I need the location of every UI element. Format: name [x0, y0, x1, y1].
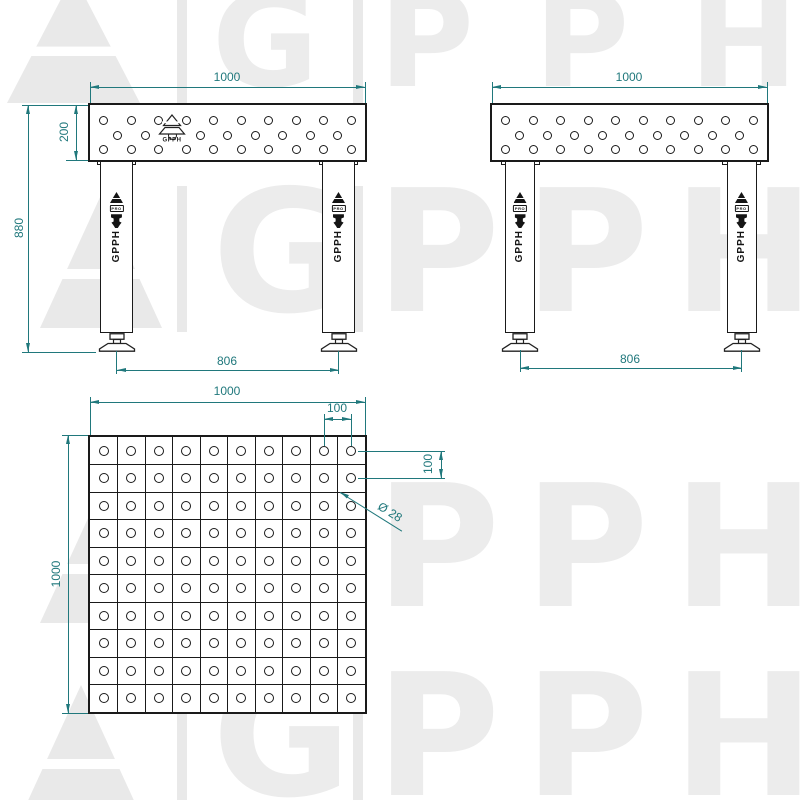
grid-hole — [181, 611, 191, 621]
front-tabletop-hole — [209, 116, 218, 125]
front-tabletop-hole — [319, 116, 328, 125]
grid-hole — [291, 611, 301, 621]
dim-ext-line — [767, 82, 768, 103]
side-tabletop-hole — [501, 145, 510, 154]
gpph-logo-front: GPPH — [152, 113, 192, 144]
leg-brand-text: GPPH — [515, 230, 525, 262]
emblem-icon — [736, 214, 747, 228]
dim-arrow — [26, 105, 30, 114]
grid-line-horizontal — [90, 602, 365, 603]
grid-hole — [319, 446, 329, 456]
table-leg: PROGPPH — [322, 160, 355, 333]
table-leg: PROGPPH — [727, 160, 757, 333]
grid-hole — [264, 583, 274, 593]
side-tabletop-hole — [721, 145, 730, 154]
front-tabletop-hole — [319, 145, 328, 154]
grid-hole — [319, 556, 329, 566]
leg-brand-stack: PROGPPH — [734, 192, 748, 262]
grid-hole — [99, 638, 109, 648]
grid-hole — [319, 473, 329, 483]
dim-line — [68, 435, 69, 713]
grid-line-horizontal — [90, 492, 365, 493]
front-tabletop-hole — [127, 116, 136, 125]
gpph-triangle-icon — [110, 192, 123, 203]
grid-hole — [264, 501, 274, 511]
front-tabletop-hole — [182, 145, 191, 154]
grid-hole — [209, 611, 219, 621]
table-leg: PROGPPH — [505, 160, 535, 333]
front-tabletop-hole — [306, 131, 315, 140]
side-tabletop-hole — [611, 116, 620, 125]
dim-arrow — [733, 366, 742, 370]
grid-hole — [264, 666, 274, 676]
dim-line — [90, 87, 365, 88]
grid-hole — [126, 446, 136, 456]
dim-label-front-total-height: 880 — [12, 218, 26, 238]
grid-line-horizontal — [90, 547, 365, 548]
grid-line-horizontal — [90, 574, 365, 575]
dim-arrow — [342, 417, 351, 421]
grid-hole — [291, 556, 301, 566]
adjustable-foot — [95, 333, 139, 352]
side-tabletop-hole — [625, 131, 634, 140]
side-tabletop-hole — [749, 116, 758, 125]
dim-arrow — [439, 451, 443, 460]
grid-hole — [154, 556, 164, 566]
grid-hole — [99, 446, 109, 456]
grid-hole — [154, 473, 164, 483]
grid-hole — [346, 666, 356, 676]
grid-hole — [319, 666, 329, 676]
dim-arrow — [66, 435, 70, 444]
dim-arrow — [74, 151, 78, 160]
grid-hole — [154, 638, 164, 648]
emblem-icon — [333, 214, 344, 228]
front-tabletop-hole — [127, 145, 136, 154]
grid-hole — [264, 473, 274, 483]
dim-ext-line — [358, 478, 445, 479]
grid-hole — [209, 556, 219, 566]
grid-hole — [319, 611, 329, 621]
front-tabletop-hole — [113, 131, 122, 140]
emblem-icon — [514, 214, 525, 228]
dim-arrow — [439, 469, 443, 478]
dim-arrow — [520, 366, 529, 370]
grid-hole — [126, 501, 136, 511]
grid-hole — [99, 666, 109, 676]
side-tabletop-hole — [666, 145, 675, 154]
front-tabletop-hole — [333, 131, 342, 140]
grid-hole — [236, 446, 246, 456]
grid-line-horizontal — [90, 464, 365, 465]
front-tabletop-hole — [141, 131, 150, 140]
grid-hole — [99, 501, 109, 511]
side-tabletop-hole — [735, 131, 744, 140]
dim-label-front-feet-span: 806 — [217, 354, 237, 368]
grid-hole — [126, 556, 136, 566]
grid-hole — [99, 611, 109, 621]
grid-hole — [209, 501, 219, 511]
side-tabletop-hole — [680, 131, 689, 140]
watermark-bar — [177, 0, 187, 110]
grid-hole — [181, 556, 191, 566]
front-tabletop-hole — [209, 145, 218, 154]
dim-arrow — [90, 85, 99, 89]
leg-brand-text: GPPH — [333, 230, 343, 262]
dim-arrow — [492, 85, 501, 89]
side-tabletop-hole — [694, 145, 703, 154]
dim-arrow — [324, 417, 333, 421]
dim-label-front-width: 1000 — [214, 70, 241, 84]
grid-hole — [236, 501, 246, 511]
front-tabletop-hole — [237, 116, 246, 125]
grid-hole — [181, 501, 191, 511]
emblem-icon — [111, 214, 122, 228]
dim-label-top-width: 1000 — [214, 384, 241, 398]
grid-hole — [236, 666, 246, 676]
grid-hole — [209, 666, 219, 676]
side-tabletop-hole — [653, 131, 662, 140]
front-tabletop-hole — [292, 145, 301, 154]
leg-brand-text: GPPH — [111, 230, 121, 262]
grid-hole — [99, 556, 109, 566]
watermark-gpph-text: GPPH — [212, 0, 800, 106]
side-tabletop-hole — [570, 131, 579, 140]
dim-arrow — [356, 85, 365, 89]
grid-hole — [99, 528, 109, 538]
grid-hole — [209, 638, 219, 648]
grid-hole — [209, 473, 219, 483]
gpph-logo-text: GPPH — [162, 138, 181, 144]
side-tabletop-hole — [584, 116, 593, 125]
grid-hole — [154, 583, 164, 593]
front-tabletop-hole — [278, 131, 287, 140]
side-tabletop-hole — [749, 145, 758, 154]
grid-hole — [99, 583, 109, 593]
grid-hole — [264, 556, 274, 566]
front-tabletop-hole — [196, 131, 205, 140]
side-tabletop-hole — [598, 131, 607, 140]
dim-arrow — [90, 400, 99, 404]
dim-line — [492, 87, 767, 88]
grid-hole — [264, 528, 274, 538]
side-tabletop-hole — [666, 116, 675, 125]
watermark-triangle-logo — [7, 0, 140, 103]
front-tabletop-hole — [99, 116, 108, 125]
side-tabletop-hole — [556, 145, 565, 154]
dim-ext-line — [22, 352, 96, 353]
side-tabletop-hole — [501, 116, 510, 125]
dim-label-hole-spacing-y: 100 — [421, 454, 435, 474]
dim-arrow — [330, 368, 339, 372]
grid-hole — [154, 528, 164, 538]
grid-line-horizontal — [90, 657, 365, 658]
dim-label-side-width: 1000 — [616, 70, 643, 84]
pro-badge: PRO — [109, 205, 123, 212]
grid-hole — [319, 693, 329, 703]
grid-line-horizontal — [90, 629, 365, 630]
front-tabletop-hole — [154, 145, 163, 154]
front-tabletop-hole — [347, 145, 356, 154]
dim-label-front-top-height: 200 — [57, 122, 71, 142]
grid-hole — [181, 446, 191, 456]
dim-arrow — [356, 400, 365, 404]
grid-hole — [181, 666, 191, 676]
gpph-triangle-icon — [513, 192, 526, 203]
leg-brand-stack: PROGPPH — [109, 192, 123, 262]
dim-ext-line — [365, 397, 366, 435]
side-tabletop-hole — [543, 131, 552, 140]
grid-hole — [264, 693, 274, 703]
side-tabletop-hole — [694, 116, 703, 125]
pro-badge: PRO — [734, 205, 748, 212]
leg-brand-stack: PROGPPH — [331, 192, 345, 262]
grid-hole — [154, 666, 164, 676]
front-tabletop-hole — [251, 131, 260, 140]
grid-hole — [319, 501, 329, 511]
grid-hole — [99, 473, 109, 483]
dim-arrow — [117, 368, 126, 372]
grid-hole — [209, 583, 219, 593]
grid-hole — [346, 611, 356, 621]
dim-ext-line — [22, 105, 88, 106]
grid-hole — [346, 446, 356, 456]
grid-hole — [154, 611, 164, 621]
dim-line — [28, 105, 29, 352]
dim-label-top-height: 1000 — [49, 561, 63, 588]
front-tabletop-hole — [264, 145, 273, 154]
dim-ext-line — [358, 451, 445, 452]
side-tabletop-hole — [529, 116, 538, 125]
dim-arrow — [758, 85, 767, 89]
side-tabletop-hole — [529, 145, 538, 154]
watermark-bar — [177, 186, 187, 332]
leg-brand-text: GPPH — [736, 230, 746, 262]
dim-line — [117, 370, 339, 371]
grid-hole — [291, 666, 301, 676]
dim-label-hole-spacing-x: 100 — [327, 401, 347, 415]
front-tabletop-hole — [223, 131, 232, 140]
side-tabletop-hole — [708, 131, 717, 140]
side-tabletop-hole — [584, 145, 593, 154]
dim-line — [90, 402, 365, 403]
dim-arrow — [66, 704, 70, 713]
grid-hole — [319, 638, 329, 648]
side-tabletop-hole — [639, 145, 648, 154]
grid-hole — [209, 446, 219, 456]
grid-hole — [291, 501, 301, 511]
grid-hole — [291, 446, 301, 456]
pro-badge: PRO — [513, 205, 527, 212]
grid-hole — [319, 583, 329, 593]
dim-label-side-feet-span: 806 — [620, 352, 640, 366]
grid-hole — [264, 638, 274, 648]
grid-hole — [99, 693, 109, 703]
adjustable-foot — [720, 333, 764, 352]
dim-ext-line — [365, 82, 366, 103]
front-tabletop-hole — [292, 116, 301, 125]
grid-hole — [264, 611, 274, 621]
dim-ext-line — [351, 414, 352, 446]
grid-hole — [126, 611, 136, 621]
grid-line-horizontal — [90, 684, 365, 685]
adjustable-foot — [498, 333, 542, 352]
side-tabletop-hole — [721, 116, 730, 125]
side-tabletop-hole — [556, 116, 565, 125]
technical-drawing-canvas: GPPH GPPH GPPH GPPH GPPH 1000 200 880 80… — [0, 0, 800, 800]
front-tabletop-hole — [237, 145, 246, 154]
dim-line — [520, 368, 742, 369]
gpph-triangle-icon — [332, 192, 345, 203]
grid-hole — [236, 556, 246, 566]
grid-line-horizontal — [90, 519, 365, 520]
dim-arrow — [74, 105, 78, 114]
front-tabletop-hole — [347, 116, 356, 125]
grid-hole — [264, 446, 274, 456]
pro-badge: PRO — [331, 205, 345, 212]
adjustable-foot — [317, 333, 361, 352]
grid-hole — [236, 611, 246, 621]
side-tabletop-hole — [611, 145, 620, 154]
dim-arrow — [26, 343, 30, 352]
grid-hole — [209, 528, 219, 538]
grid-hole — [154, 501, 164, 511]
table-leg: PROGPPH — [100, 160, 133, 333]
grid-hole — [154, 693, 164, 703]
side-tabletop-hole — [639, 116, 648, 125]
front-tabletop-hole — [99, 145, 108, 154]
front-tabletop-hole — [264, 116, 273, 125]
grid-hole — [346, 556, 356, 566]
grid-hole — [209, 693, 219, 703]
side-tabletop-hole — [515, 131, 524, 140]
grid-hole — [154, 446, 164, 456]
gpph-triangle-icon — [735, 192, 748, 203]
grid-hole — [319, 528, 329, 538]
grid-hole — [126, 666, 136, 676]
leg-brand-stack: PROGPPH — [513, 192, 527, 262]
